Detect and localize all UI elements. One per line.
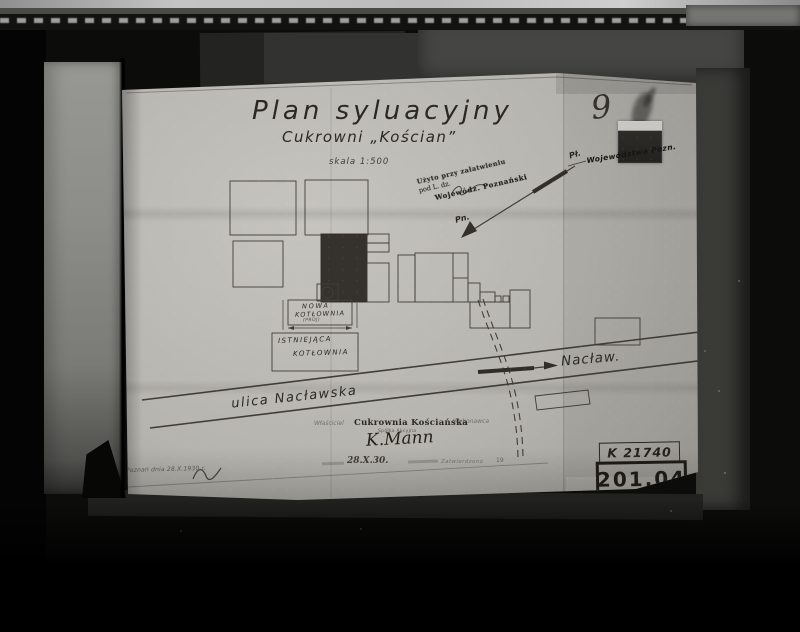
plan-scale: skala 1:500 [329,157,389,167]
fold-tint [566,72,698,477]
outbuilding [595,318,640,345]
archival-photo: Plan syluacyjny Cukrowni „Kościan” skala… [0,0,800,632]
approved-year: 19 [496,457,504,464]
fold-crease-horizontal-1 [122,206,698,222]
plan-subtitle: Cukrowni „Kościan” [282,128,457,146]
new-boiler-label-1: NOWA [302,302,330,311]
faded-print [322,462,344,466]
owner-name: Cukrownia Kościańska [354,418,468,428]
approval-stamp: Użyto przy załatwieniu pod L. dz. Wojewó… [416,147,559,207]
page-number: 9 [589,87,613,127]
binder-stitch-highlights [0,18,800,23]
binder-corner [686,5,800,26]
rail-siding [478,299,523,462]
faded-print [408,459,438,463]
maker-label: Wykonawca [453,418,489,425]
compass-label-top: Pł. [568,149,582,161]
north-arrow [461,161,586,238]
stamp-line-3: Wojewódz. Poznański [434,165,559,203]
owner-label: Właściciel [314,420,344,427]
signature: K.Mann [366,427,435,451]
date-center: 28.X.30. [347,456,388,466]
revenue-stamp [618,121,662,163]
archive-catalog-box: K 21740 [599,441,680,463]
new-boiler-outline [288,300,352,325]
fold-crease-horizontal-2 [122,380,698,396]
building-south-of-street [535,390,590,410]
bottom-vignette [0,500,800,595]
film-edge-strip [0,0,800,8]
new-boiler-note: (PROJ) [303,318,320,324]
folder-right-edge [696,68,750,510]
fold-crease-vertical [563,72,566,492]
street-line-upper [142,330,716,400]
plan-title: Plan syluacyjny [252,96,513,126]
street-line-lower [150,358,722,428]
compass-label-bottom: Pn. [454,212,470,224]
dark-filled-building [321,234,367,302]
existing-boiler-label-2: KOTŁOWNIA [293,348,349,358]
existing-boiler-outline [272,333,358,371]
existing-boiler-label-1: ISTNIEJĄCA [278,335,332,345]
direction-arrow [478,362,558,373]
previous-page [44,62,122,494]
new-boiler-label-2: KOTŁOWNIA [295,309,345,319]
street-label: ulica Nacławska [231,383,359,411]
stamp-line-1: Użyto przy załatwieniu [416,147,555,188]
chimney-plan [317,284,338,301]
stamp-line-2: pod L. dz. [418,156,557,197]
approved-label: Zatwierdzono [441,459,483,465]
owner-subtitle: Spółka Akcyjna [378,429,416,434]
fold-crease-faint [330,88,332,498]
direction-label-naclaw: Nacław. [560,348,621,369]
site-plan-linework [126,77,722,487]
stamp-signature-scribble [452,185,486,195]
ink-smudge [628,90,655,130]
date-left: Poznań dnia 28.X.1930 r. [126,465,206,474]
left-signature-scribble [193,468,221,480]
stamp-annotation: Województwa Pozn. [586,142,677,165]
ink-smudge-trail [641,86,658,109]
caption-bar: Archiwum Państwowe w Poznaniu [0,590,800,632]
archive-catalog-number: K 21740 [607,444,672,460]
